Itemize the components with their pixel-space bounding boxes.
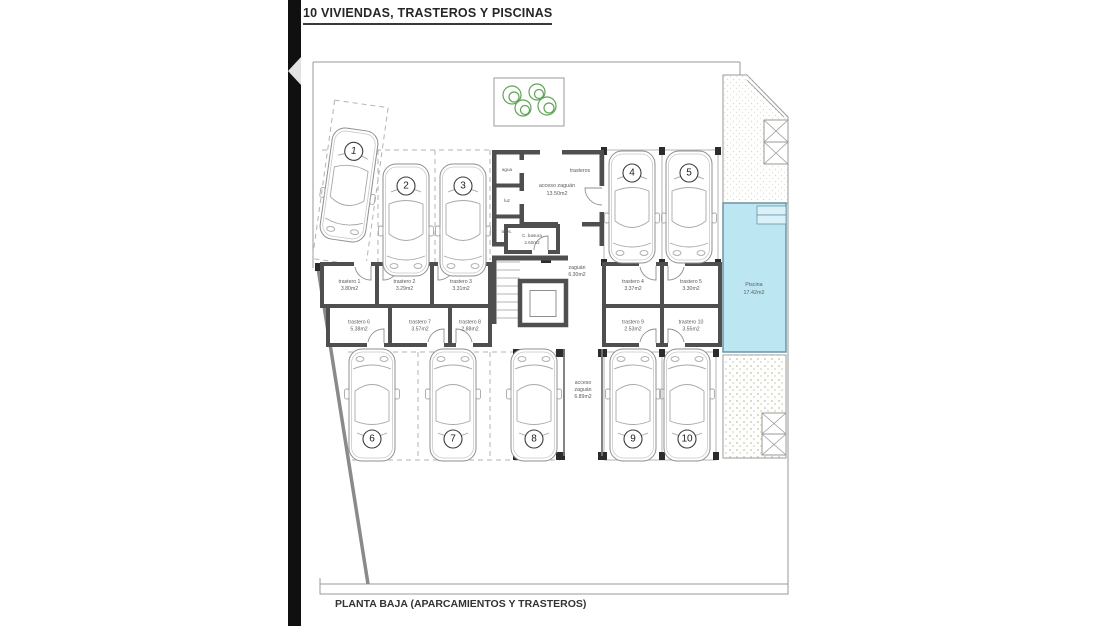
storeroom-trastero-1: trastero 13.80m2 [322,261,377,306]
corridor-label-2: zaguán [574,387,591,393]
sidewalk-strip [320,584,788,594]
parking-spot-5: 5 [662,151,717,263]
hall-label: zaguán [568,265,585,271]
parking-spot-3: 3 [436,164,491,276]
entry-area: 13.50m2 [547,191,568,197]
storeroom-area: 3.80m2 [341,286,358,292]
storeroom-label: trastero 8 [459,320,481,326]
parking-number: 10 [681,434,693,445]
parking-number: 2 [403,181,409,192]
parking-number: 6 [369,434,375,445]
parking-spot-10: 10 [660,349,715,461]
storeroom-trastero-8: trastero 82.88m2 [450,306,490,348]
pool-label: Piscina [745,282,762,288]
parking-spot-6: 6 [345,349,400,461]
storeroom-trastero-7: trastero 73.57m2 [390,306,450,348]
parking-spot-9: 9 [606,349,661,461]
parking-spot-1: 1 [314,126,384,245]
parking-number: 7 [450,434,456,445]
corridor-walls [564,349,602,456]
parking-spot-8: 8 [507,349,562,461]
entry-label: acceso zaguán [539,183,575,189]
left-black-bar [288,0,301,626]
terrace-grate-boxes [764,120,788,164]
storeroom-area: 2.53m2 [624,327,641,333]
parking-spot-7: 7 [426,349,481,461]
storeroom-label: trastero 6 [348,320,370,326]
storeroom-area: 5.38m2 [350,327,367,333]
elevator [520,281,566,325]
storeroom-trastero-5: trastero 53.30m2 [662,261,720,306]
planter-trees-icon [503,84,556,116]
basura-label: C. basura [522,233,542,238]
corridor-label-1: acceso [575,380,592,386]
storeroom-trastero-10: trastero 103.55m2 [662,306,720,348]
storeroom-label: trastero 10 [679,320,704,326]
page-title: 10 VIVIENDAS, TRASTEROS Y PISCINAS [303,6,552,25]
parking-number: 3 [460,181,466,192]
storeroom-area: 3.57m2 [411,327,428,333]
storeroom-label: trastero 7 [409,320,431,326]
storeroom-label: trastero 2 [394,279,416,285]
plan-caption: PLANTA BAJA (APARCAMIENTOS Y TRASTEROS) [335,598,586,610]
garden-grate-boxes [762,413,786,455]
storeroom-label: trastero 1 [339,279,361,285]
left-chevron-icon[interactable] [288,57,301,85]
hall-area: 6.30m2 [568,272,585,278]
basura-area: 2.60m2 [524,240,540,245]
parking-number: 9 [630,434,636,445]
parking-number: 5 [686,168,692,179]
parking-spot-4: 4 [605,151,660,263]
floor-plan-canvas: Piscina 17.42m2 [0,0,1110,626]
storeroom-area: 3.55m2 [682,327,699,333]
pool-steps [757,206,786,224]
utility-room-label: telec. [502,229,513,234]
entry-note-label: trasteros [570,168,591,174]
storeroom-label: trastero 5 [680,279,702,285]
storeroom-trastero-6: trastero 65.38m2 [328,306,390,348]
parking-number: 4 [629,168,635,179]
storeroom-label: trastero 9 [622,320,644,326]
storeroom-area: 3.29m2 [396,286,413,292]
parking-spot-2: 2 [379,164,434,276]
pool-area: 17.42m2 [744,290,765,296]
corridor-area: 6.89m2 [574,394,591,400]
storeroom-area: 2.88m2 [461,327,478,333]
pool [723,203,786,352]
storeroom-area: 3.37m2 [624,286,641,292]
storeroom-trastero-4: trastero 43.37m2 [604,261,662,306]
utility-room-label: agua [502,167,513,172]
storeroom-label: trastero 4 [622,279,644,285]
storeroom-area: 3.31m2 [452,286,469,292]
storeroom-trastero-9: trastero 92.53m2 [604,306,662,348]
parking-number: 8 [531,434,537,445]
storeroom-area: 3.30m2 [682,286,699,292]
plan-sheet: Piscina 17.42m2 [0,0,1110,626]
utility-room-label: luz [504,198,511,203]
storeroom-label: trastero 3 [450,279,472,285]
